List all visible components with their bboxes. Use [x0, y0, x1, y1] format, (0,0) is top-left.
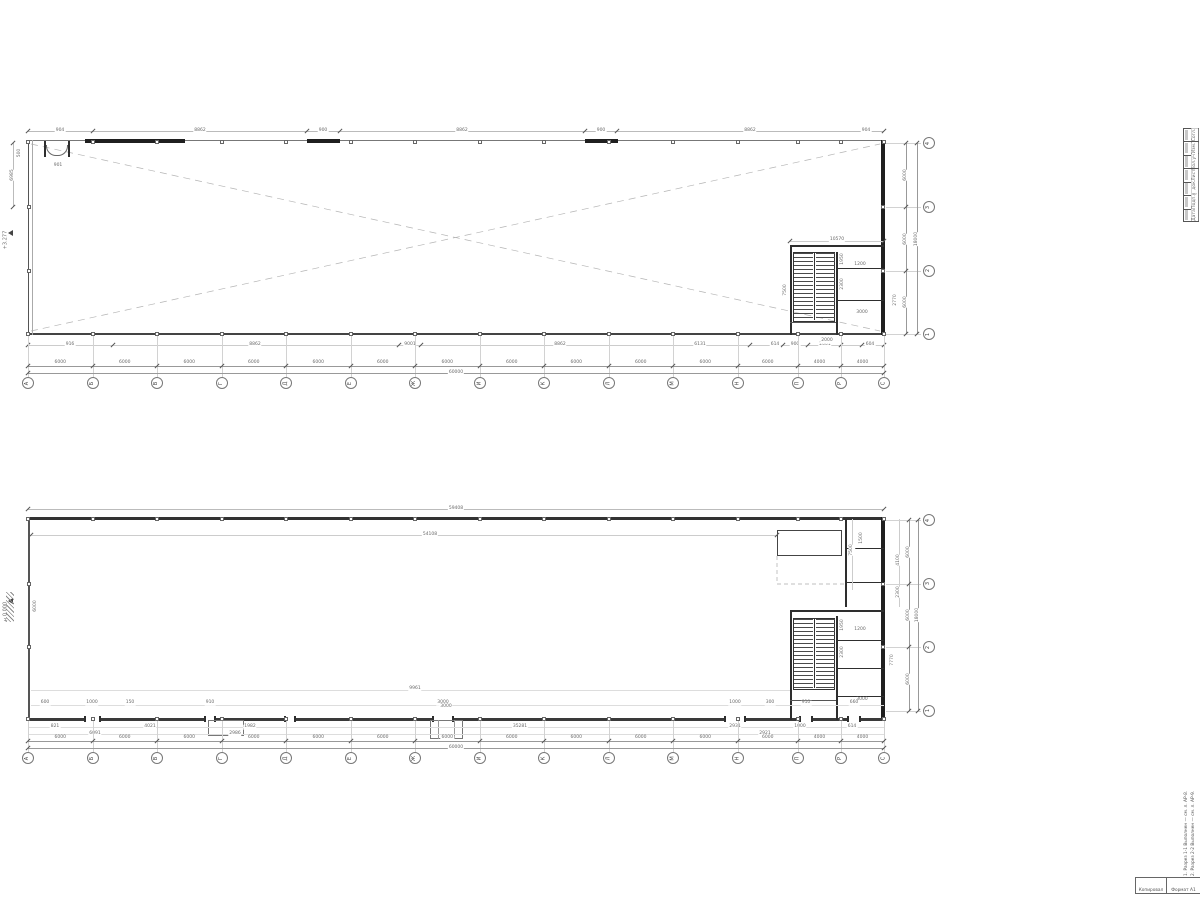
axis-label: С [882, 381, 887, 385]
opening-jamb [744, 716, 746, 722]
dimension-label: 6000 [634, 736, 647, 741]
axis-bubble: П [792, 752, 804, 764]
dimension-label: 6000 [699, 736, 712, 741]
dimension-label: 910 [205, 701, 216, 706]
column-marker [607, 332, 611, 336]
dimension-label: 8862 [743, 129, 756, 134]
column-marker [542, 517, 546, 521]
corner-table-cell: Формат А1 [1167, 878, 1200, 893]
opening-jamb [811, 716, 813, 722]
dimension-label: 2770 [893, 294, 900, 305]
axis-label: Р [838, 756, 843, 759]
room-wall [836, 668, 884, 669]
dimension-label: 4000 [813, 736, 826, 741]
dimension-label: 59408 [448, 507, 464, 512]
opening-jamb [724, 716, 726, 722]
axis-stem [93, 336, 94, 377]
column-marker [155, 140, 159, 144]
dimension-label: 904 [861, 129, 872, 134]
dimension-label: Подп. [1192, 195, 1199, 209]
axis-stem [609, 336, 610, 377]
dimension-label: 6000 [118, 736, 131, 741]
dimension-label: 1950 [840, 253, 847, 264]
axis-label: С [882, 756, 887, 760]
axis-bubble: Р [835, 752, 847, 764]
dimension-label: 8862 [248, 343, 261, 348]
interior-wall [845, 519, 847, 607]
dimension-label: 904 [55, 129, 66, 134]
column-marker [284, 332, 288, 336]
door-jamb [68, 141, 70, 157]
dimension-label: 916 [65, 343, 76, 348]
axis-bubble: Ж [409, 377, 421, 389]
axis-bubble: Р [835, 377, 847, 389]
axis-label: А [25, 756, 30, 759]
column-marker [284, 140, 288, 144]
stair-wall [790, 245, 884, 247]
opening-jamb [99, 716, 101, 722]
dimension-label: 6131 [693, 343, 706, 348]
stamp-cell-fill [1185, 183, 1189, 193]
column-marker [881, 645, 885, 649]
wall-left [28, 517, 30, 720]
wall-left-inner [32, 140, 33, 335]
column-marker [27, 205, 31, 209]
dimension-label: 4000 [856, 736, 869, 741]
dimension-label: 6000 [312, 736, 325, 741]
dimension-label: 6000 [118, 361, 131, 366]
axis-bubble: Е [345, 377, 357, 389]
column-marker [478, 332, 482, 336]
axis-label: Л [606, 381, 611, 385]
dimension-label: Кол.уч [1192, 154, 1199, 170]
axis-stem [886, 584, 921, 585]
dimension-label: 6000 [906, 673, 913, 684]
dimension-label: 6000 [903, 296, 910, 307]
note-line-2: 2. Разрез 2-2 Выполнен — см. л. АР-9. [1192, 806, 1197, 876]
axis-label: Ж [412, 380, 417, 385]
column-marker [736, 140, 740, 144]
dimension-label: 9961 [408, 687, 421, 692]
dimension-label: 900 [790, 343, 801, 348]
stamp-cell-fill [1185, 170, 1189, 180]
axis-bubble: 1 [923, 705, 935, 717]
axis-label: П [795, 756, 800, 760]
column-marker [220, 517, 224, 521]
wall-bottom-segment [745, 718, 800, 721]
dimension-label: 6000 [247, 361, 260, 366]
axis-label: К [542, 381, 547, 385]
room-wall [836, 300, 884, 301]
axis-label: 1 [927, 332, 932, 335]
note-line-1: 1. Разрез 1-1 Выполнен — см. л. АР-8. [1185, 812, 1190, 876]
axis-bubble: 4 [923, 137, 935, 149]
dimension-label: 7500 [783, 284, 790, 295]
axis-stem [798, 336, 799, 377]
column-marker [26, 517, 30, 521]
axis-label: 1 [927, 709, 932, 712]
axis-bubble: С [878, 377, 890, 389]
dimension-label: Изм. [1192, 143, 1199, 154]
dimension-label: 910 [801, 701, 812, 706]
axis-stem [841, 336, 842, 377]
axis-label: 4 [927, 518, 932, 521]
axis-bubble: С [878, 752, 890, 764]
axis-bubble: Л [603, 377, 615, 389]
axis-bubble: Г [216, 752, 228, 764]
axis-bubble: М [667, 752, 679, 764]
column-marker [91, 140, 95, 144]
column-marker [671, 140, 675, 144]
dimension-label: 6000 [903, 233, 910, 244]
dimension-label: 6000 [54, 361, 67, 366]
axis-label: 2 [927, 269, 932, 272]
dimension-label: 6000 [54, 736, 67, 741]
column-marker [607, 140, 611, 144]
dimension-label: 7770 [890, 654, 897, 665]
dimension-label: 6000 [570, 361, 583, 366]
axis-label: Н [735, 756, 740, 760]
axis-label: Е [348, 756, 353, 759]
dimension-label: 500 [17, 149, 24, 158]
column-marker [478, 517, 482, 521]
dimension-label: 150 [125, 701, 136, 706]
drawing-canvas: +3.277 ±0.000 6000 1. Разрез 1-1 Выполне… [0, 0, 1200, 900]
axis-label: В [155, 381, 160, 384]
column-marker [91, 517, 95, 521]
column-marker [839, 140, 843, 144]
opening-jamb [204, 716, 206, 722]
dimension-label: 1000 [728, 701, 741, 706]
column-marker [26, 140, 30, 144]
axis-stem [351, 336, 352, 377]
column-marker [155, 332, 159, 336]
axis-label: И [477, 756, 482, 760]
wall-segment [85, 139, 185, 143]
dimension-label: 8862 [553, 343, 566, 348]
dimension-label: 18000 [915, 608, 922, 622]
axis-bubble: Б [87, 377, 99, 389]
axis-label: К [542, 756, 547, 760]
axis-label: В [155, 756, 160, 759]
axis-bubble: И [474, 377, 486, 389]
dimension-label: 2300 [840, 646, 847, 657]
dimension-label: 6985 [10, 169, 17, 180]
axis-label: Б [90, 381, 95, 384]
axis-stem [222, 336, 223, 377]
wall-left [28, 140, 29, 335]
room-wall [845, 582, 884, 583]
column-marker [26, 332, 30, 336]
dimension-label: 6000 [761, 736, 774, 741]
dimension-label: 6000 [761, 361, 774, 366]
dimension-label: 6000 [570, 736, 583, 741]
dimension-label: 18000 [914, 231, 921, 245]
dimension-label: 10570 [829, 238, 845, 243]
dimension-label: 6000 [903, 169, 910, 180]
stair-flight [794, 619, 813, 688]
axis-bubble: 4 [923, 514, 935, 526]
dimension-label: 614 [770, 343, 781, 348]
column-marker [27, 269, 31, 273]
stamp-cell-fill [1185, 210, 1189, 220]
dimension-label: 7500 [849, 544, 856, 555]
stair-flight [794, 253, 813, 320]
axis-label: 2 [927, 645, 932, 648]
dimension-label: Согл. [1192, 128, 1199, 141]
stair-wall [790, 610, 884, 612]
column-marker [27, 582, 31, 586]
dimension-label: 35281 [512, 725, 528, 730]
column-marker [736, 517, 740, 521]
column-marker [839, 332, 843, 336]
column-marker [607, 517, 611, 521]
dimension-label: 6000 [906, 609, 913, 620]
column-marker [220, 332, 224, 336]
axis-stem [544, 336, 545, 377]
dimension-label: 6091 [88, 732, 101, 737]
dimension-label: 6000 [699, 361, 712, 366]
dimension-label: 6000 [247, 736, 260, 741]
dimension-label: 6000 [183, 736, 196, 741]
corner-table-cell: Копировал [1136, 878, 1167, 893]
axis-label: И [477, 381, 482, 385]
dimension-label: 821 [50, 725, 61, 730]
axis-bubble: 2 [923, 265, 935, 277]
axis-stem [738, 336, 739, 377]
axis-bubble: М [667, 377, 679, 389]
axis-label: Н [735, 381, 740, 385]
column-marker [839, 517, 843, 521]
wall-bottom-segment [28, 718, 85, 721]
column-marker [413, 332, 417, 336]
axis-bubble: Л [603, 752, 615, 764]
dim-line [31, 705, 884, 706]
axis-label: Л [606, 756, 611, 760]
axis-label: Р [838, 381, 843, 384]
axis-label: Д [284, 756, 289, 760]
dimension-label: 6000 [505, 361, 518, 366]
dimension-label: 6000 [906, 546, 913, 557]
column-marker [220, 140, 224, 144]
room-wall [790, 322, 836, 323]
column-marker [542, 140, 546, 144]
column-marker [796, 140, 800, 144]
axis-stem [673, 336, 674, 377]
dimension-label: 4000 [856, 361, 869, 366]
dimension-label: 4021 [143, 725, 156, 730]
elevation-mark-icon [8, 230, 13, 236]
axis-bubble: 2 [923, 641, 935, 653]
vestibule-line [454, 720, 455, 739]
axis-bubble: К [538, 752, 550, 764]
stamp-cell-fill [1185, 143, 1189, 153]
axis-stem [480, 336, 481, 377]
dimension-label: 1200 [853, 628, 866, 633]
wall-bottom-segment [100, 718, 205, 721]
wall-segment [307, 139, 340, 143]
dimension-label: 2001 [818, 343, 831, 348]
axis-bubble: Б [87, 752, 99, 764]
column-marker [349, 140, 353, 144]
column-marker [155, 517, 159, 521]
dimension-label: 3000 [439, 705, 452, 710]
column-marker [413, 517, 417, 521]
dimension-label: 2986 [228, 732, 241, 737]
axis-bubble: П [792, 377, 804, 389]
column-marker [413, 140, 417, 144]
axis-bubble: Д [280, 377, 292, 389]
stair-wall [790, 610, 792, 720]
dimension-label: 6000 [441, 736, 454, 741]
axis-bubble: А [22, 752, 34, 764]
axis-label: Г [219, 756, 224, 759]
dimension-label: 3000 [855, 311, 868, 316]
dimension-label: 4000 [813, 361, 826, 366]
axis-label: Б [90, 756, 95, 759]
dimension-label: 6000 [376, 361, 389, 366]
axis-bubble: Г [216, 377, 228, 389]
sheet-corner-table: Копировал Формат А1 [1135, 877, 1200, 894]
column-marker [349, 517, 353, 521]
dimension-label: 6000 [441, 361, 454, 366]
left-dimension-lower: 6000 [33, 600, 40, 611]
axis-bubble: К [538, 377, 550, 389]
canopy-rect [777, 530, 842, 556]
column-marker [796, 517, 800, 521]
dimension-label: 2300 [896, 586, 903, 597]
dimension-label: 660 [849, 701, 860, 706]
axis-stem [157, 336, 158, 377]
column-marker [671, 332, 675, 336]
axis-stem [886, 647, 921, 648]
dimension-label: 1200 [853, 263, 866, 268]
dimension-label: 6000 [634, 361, 647, 366]
axis-stem [286, 336, 287, 377]
axis-label: 3 [927, 582, 932, 585]
axis-label: М [670, 381, 675, 385]
axis-bubble: А [22, 377, 34, 389]
opening-jamb [859, 716, 861, 722]
dimension-label: 2000 [820, 339, 833, 344]
dimension-label: 1950 [840, 619, 847, 630]
axis-stem [415, 336, 416, 377]
dimension-label: 1000 [793, 725, 806, 730]
column-marker [881, 205, 885, 209]
column-marker [478, 140, 482, 144]
stair-wall [836, 252, 838, 335]
axis-label: Д [284, 381, 289, 385]
opening-jamb [847, 716, 849, 722]
stamp-cell-fill [1185, 156, 1189, 166]
dimension-label: 6000 [312, 361, 325, 366]
elevation-leader-hatch [6, 592, 14, 622]
dimension-label: 901 [53, 164, 64, 169]
dimension-label: Дата [1192, 209, 1199, 221]
dim-line [31, 535, 777, 536]
room-wall [836, 268, 884, 269]
stair-divider [814, 253, 815, 320]
column-marker [796, 332, 800, 336]
room-wall [836, 640, 884, 641]
axis-bubble: И [474, 752, 486, 764]
wall-bottom-segment [453, 718, 725, 721]
dimension-label: 60000 [448, 370, 464, 375]
dimension-label: 614 [847, 725, 858, 730]
axis-bubble: Д [280, 752, 292, 764]
dimension-label: 1982 [243, 725, 256, 730]
stamp-cell-fill [1185, 130, 1189, 140]
stair-flight [816, 619, 835, 688]
dimension-label: 900 [596, 129, 607, 134]
room-wall [790, 700, 836, 701]
dimension-label: 604 [865, 343, 876, 348]
column-marker [284, 517, 288, 521]
axis-bubble: Ж [409, 752, 421, 764]
dimension-label: 6000 [505, 736, 518, 741]
axis-bubble: Е [345, 752, 357, 764]
dimension-label: 1000 [85, 701, 98, 706]
wall-segment [585, 139, 618, 143]
axis-bubble: Н [732, 752, 744, 764]
column-marker [736, 332, 740, 336]
stamp-cell-fill [1185, 197, 1189, 207]
axis-label: 3 [927, 205, 932, 208]
dimension-label: 54108 [422, 533, 438, 538]
dimension-label: 6000 [376, 736, 389, 741]
dimension-label: 1500 [859, 532, 866, 543]
wall-right [881, 140, 885, 335]
opening-jamb [294, 716, 296, 722]
column-marker [542, 332, 546, 336]
axis-bubble: 1 [923, 328, 935, 340]
dimension-label: 60000 [448, 746, 464, 751]
axis-bubble: В [151, 752, 163, 764]
dimension-label: 2931 [728, 725, 741, 730]
column-marker [27, 645, 31, 649]
stair-flight [816, 253, 835, 320]
vestibule-line [438, 720, 439, 739]
axis-bubble: Н [732, 377, 744, 389]
dimension-label: 600 [40, 701, 51, 706]
axis-bubble: 3 [923, 578, 935, 590]
axis-label: Г [219, 381, 224, 384]
wall-bottom-segment [860, 718, 884, 721]
dimension-label: 900 [318, 129, 329, 134]
axis-label: Ж [412, 755, 417, 760]
column-marker [349, 332, 353, 336]
stair-divider [814, 619, 815, 688]
column-marker [671, 517, 675, 521]
dimension-label: 4100 [896, 554, 903, 565]
dashed-lines-overlay [0, 0, 1200, 900]
dimension-label: 8862 [193, 129, 206, 134]
axis-label: П [795, 381, 800, 385]
dimension-label: 6000 [183, 361, 196, 366]
axis-bubble: В [151, 377, 163, 389]
dimension-label: 2300 [840, 278, 847, 289]
column-marker [91, 332, 95, 336]
dimension-label: 8862 [455, 129, 468, 134]
axis-label: Е [348, 381, 353, 384]
opening-jamb [84, 716, 86, 722]
axis-label: А [25, 381, 30, 384]
axis-label: М [670, 756, 675, 760]
axis-bubble: 3 [923, 201, 935, 213]
dimension-label: 300 [765, 701, 776, 706]
axis-label: 4 [927, 141, 932, 144]
